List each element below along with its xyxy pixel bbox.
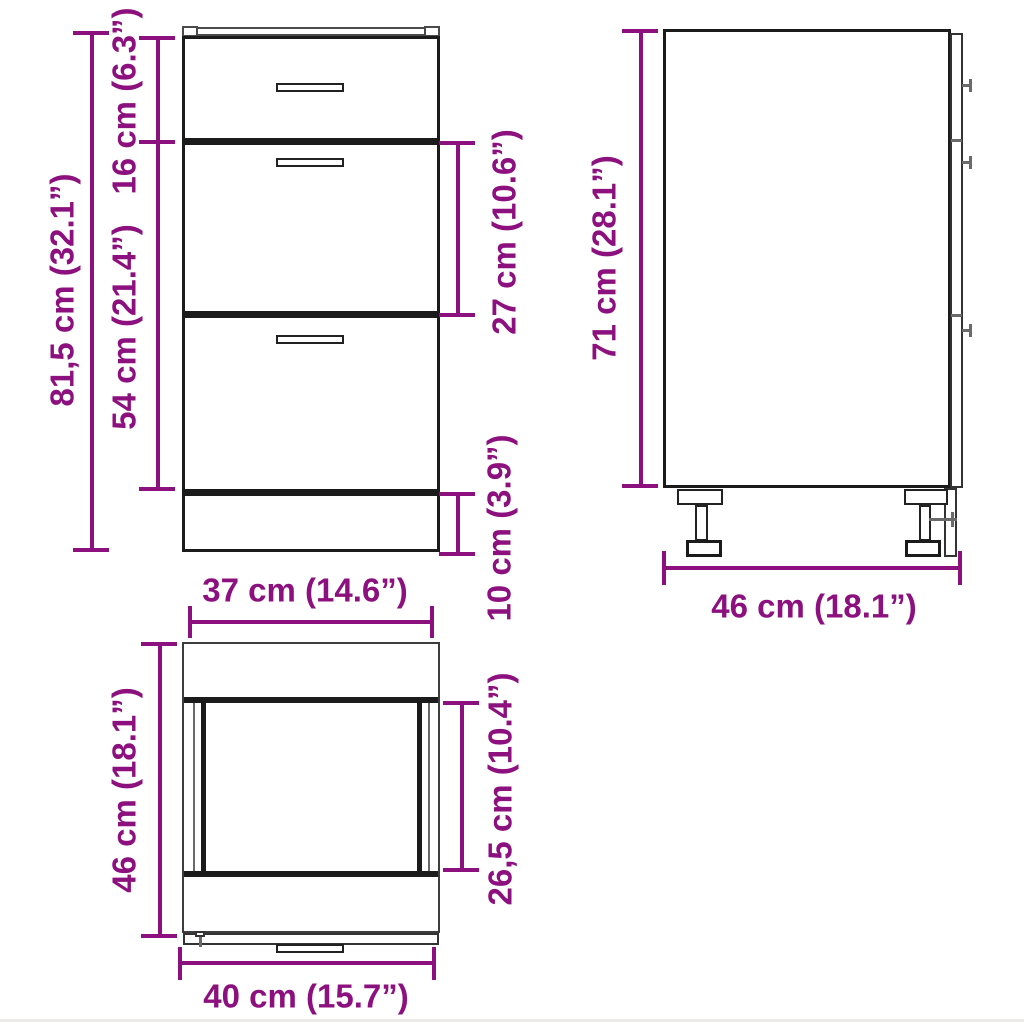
top-screw-stem — [199, 937, 202, 947]
top-cabinet-outline — [182, 642, 440, 933]
image-bottom-edge-line — [0, 1019, 1024, 1022]
front-divider-1 — [185, 138, 437, 145]
dim-total-height-line — [90, 33, 94, 552]
dim-top-width-label: 40 cm (15.7”) — [203, 980, 408, 1013]
dim-side-depth-tick-left — [662, 551, 666, 585]
dim-side-depth-label: 46 cm (18.1”) — [711, 590, 916, 623]
top-back-edge-line — [184, 871, 438, 877]
dim-drawer-heights-tick-top — [139, 36, 175, 40]
dim-middle-drawer-line — [456, 143, 460, 317]
dim-drawer-heights-tick-bottom — [139, 487, 175, 491]
top-rail-right-outer — [428, 703, 430, 872]
dim-plinth-line — [456, 494, 460, 556]
dim-side-height-tick-top — [622, 29, 658, 33]
dim-drawer-heights-tick-middle — [139, 140, 175, 144]
front-divider-2 — [185, 311, 437, 318]
dim-side-height-label: 71 cm (28.1”) — [588, 155, 621, 360]
dim-top-depth-label: 46 cm (18.1”) — [108, 687, 141, 892]
dim-middle-drawer-tick-top — [439, 141, 475, 145]
dim-lower-section-label: 54 cm (21.4”) — [108, 224, 141, 429]
dim-top-drawer-label: 16 cm (6.3”) — [108, 7, 141, 194]
dim-top-width-tick-right — [432, 947, 436, 980]
side-leg-right-stem — [919, 505, 931, 541]
side-leg-left-stem — [695, 505, 708, 541]
front-divider-3 — [185, 489, 437, 496]
dim-side-depth-line — [664, 566, 960, 570]
top-rail-right-inner — [417, 703, 422, 872]
dim-top-width-tick-left — [178, 947, 182, 980]
dim-side-depth-tick-right — [958, 551, 962, 585]
side-leg-right-nut — [904, 489, 948, 505]
front-drawer-handle-2 — [276, 158, 344, 167]
dim-top-inner-depth-tick-top — [443, 701, 479, 705]
dim-top-inner-depth-label: 26,5 cm (10.4”) — [484, 673, 517, 906]
dim-total-height-label: 81,5 cm (32.1”) — [46, 174, 79, 407]
dim-drawer-heights-line — [156, 38, 160, 491]
front-countertop-strip — [186, 27, 436, 36]
side-drawer-front-strip — [950, 33, 963, 488]
side-strip-divider-1 — [951, 139, 962, 142]
dim-plinth-tick-bottom — [439, 552, 475, 556]
dim-top-depth-tick-top — [141, 642, 177, 646]
front-cabinet-outline — [182, 36, 440, 552]
dim-top-inner-depth-tick-bottom — [443, 868, 479, 872]
front-drawer-handle-3 — [276, 335, 344, 344]
dim-front-width-line — [190, 620, 432, 624]
dim-front-width-tick-left — [188, 606, 192, 638]
dim-front-width-label: 37 cm (14.6”) — [202, 574, 407, 607]
top-handle — [276, 944, 344, 953]
dim-top-width-line — [180, 961, 434, 965]
side-leg-left-nut — [677, 489, 723, 505]
dim-front-width-tick-right — [430, 606, 434, 638]
top-rail-left-outer — [193, 703, 195, 872]
side-strip-divider-2 — [951, 314, 962, 317]
dim-total-height-tick-bottom — [73, 548, 109, 552]
dim-side-height-tick-bottom — [622, 484, 658, 488]
side-leg-right-foot — [905, 540, 941, 557]
top-rail-left-inner — [201, 703, 206, 872]
dim-plinth-label: 10 cm (3.9”) — [483, 434, 516, 621]
dim-top-depth-tick-bottom — [141, 934, 177, 938]
side-leg-left-foot — [686, 540, 722, 557]
dim-plinth-tick-top — [439, 492, 475, 496]
side-leg-adjuster-icon — [951, 512, 954, 527]
top-front-edge-line — [184, 697, 438, 703]
front-drawer-handle-1 — [276, 83, 344, 92]
side-screw-1-icon — [969, 79, 972, 92]
side-screw-3-icon — [969, 324, 972, 337]
dim-side-height-line — [639, 31, 643, 488]
dim-middle-drawer-tick-bottom — [439, 313, 475, 317]
dim-total-height-tick-top — [73, 31, 109, 35]
cabinet-dimension-diagram: 81,5 cm (32.1”) 16 cm (6.3”) 54 cm (21.4… — [0, 0, 1024, 1024]
side-cabinet-outline — [663, 29, 951, 488]
dim-middle-drawer-label: 27 cm (10.6”) — [488, 129, 521, 334]
side-screw-2-icon — [969, 156, 972, 169]
dim-top-inner-depth-line — [460, 703, 464, 872]
dim-top-depth-line — [158, 644, 162, 938]
